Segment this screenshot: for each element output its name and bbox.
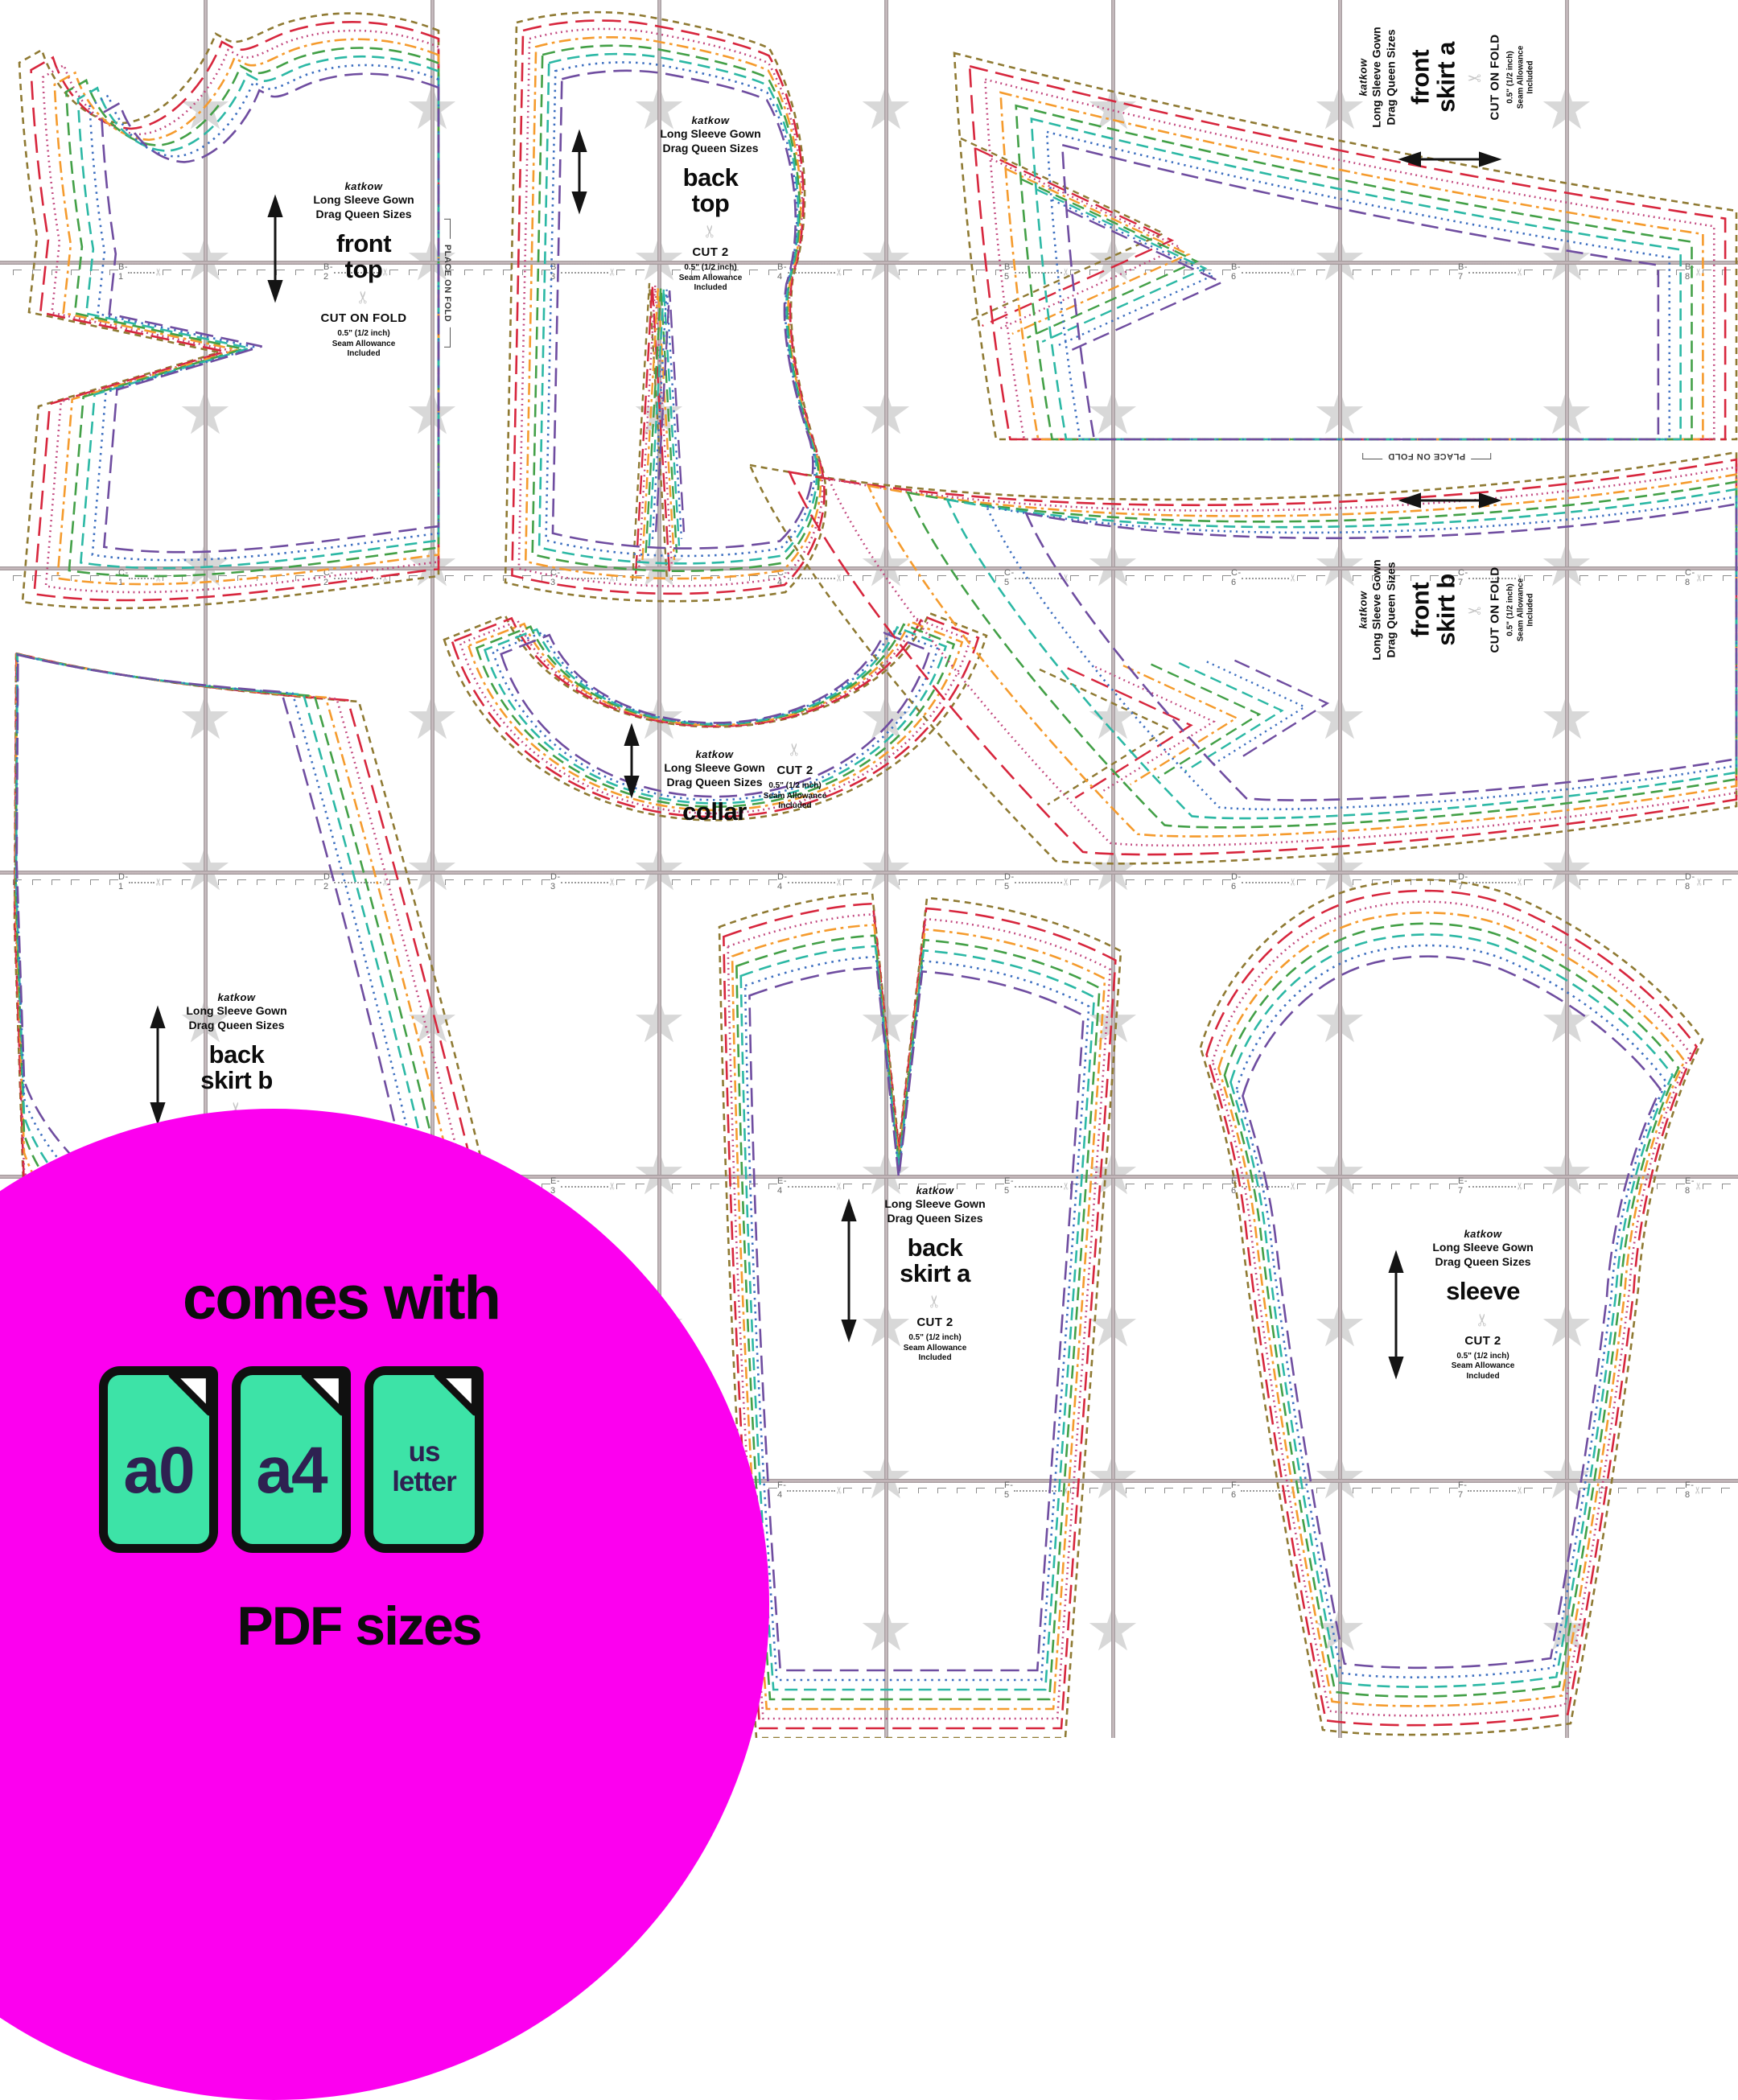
scissors-icon: ✂ bbox=[785, 743, 805, 757]
product-name-line1: Long Sleeve Gown bbox=[1390, 1240, 1576, 1254]
seam-allowance-line: 0.5" (1/2 inch) bbox=[1506, 517, 1517, 703]
pdf-size-icon-a4: a4 bbox=[232, 1366, 351, 1553]
piece-label-block-back-skirt-a: katkowLong Sleeve GownDrag Queen Sizesba… bbox=[842, 1184, 1028, 1364]
brand-logo: katkow bbox=[842, 1184, 1028, 1196]
cut-instruction: CUT 2 bbox=[842, 1316, 1028, 1329]
piece-label-block-front-top: katkowLong Sleeve GownDrag Queen Sizesfr… bbox=[270, 180, 457, 360]
seam-allowance-line: 0.5" (1/2 inch) bbox=[1506, 0, 1517, 171]
piece-name: backskirt b bbox=[143, 1042, 330, 1093]
seam-allowance-note: 0.5" (1/2 inch)Seam AllowanceIncluded bbox=[1506, 517, 1537, 703]
seam-allowance-note: 0.5" (1/2 inch)Seam AllowanceIncluded bbox=[270, 329, 457, 360]
scissors-icon: ✂ bbox=[925, 1295, 945, 1309]
piece-name-line: back bbox=[842, 1235, 1028, 1261]
place-on-fold-marker: PLACE ON FOLD bbox=[1362, 451, 1491, 461]
seam-allowance-line: Included bbox=[617, 283, 804, 294]
size-outline-size-4 bbox=[868, 475, 1736, 837]
seam-allowance-line: 0.5" (1/2 inch) bbox=[270, 329, 457, 340]
piece-name-line: front bbox=[1408, 0, 1434, 171]
piece-name-line: skirt b bbox=[143, 1068, 330, 1093]
product-name-line2: Drag Queen Sizes bbox=[1390, 1254, 1576, 1269]
seam-allowance-line: Included bbox=[1390, 1372, 1576, 1382]
dart-line-size-8 bbox=[1234, 661, 1327, 758]
piece-name: backskirt a bbox=[842, 1235, 1028, 1286]
fold-bracket bbox=[1362, 453, 1382, 459]
piece-label-block-sleeve: katkowLong Sleeve GownDrag Queen Sizessl… bbox=[1390, 1228, 1576, 1381]
seam-allowance-line: 0.5" (1/2 inch) bbox=[617, 263, 804, 274]
size-outline-size-6 bbox=[1032, 119, 1681, 439]
piece-name-line: skirt b bbox=[1433, 517, 1459, 703]
product-name-line2: Drag Queen Sizes bbox=[1384, 0, 1398, 171]
seam-allowance-line: Included bbox=[731, 801, 859, 812]
brand-logo: katkow bbox=[617, 114, 804, 126]
product-name-line1: Long Sleeve Gown bbox=[617, 126, 804, 141]
size-outline-size-4 bbox=[1001, 93, 1703, 439]
seam-allowance-line: 0.5" (1/2 inch) bbox=[1390, 1352, 1576, 1362]
size-outline-size-2 bbox=[789, 459, 1736, 854]
folded-corner-icon bbox=[167, 1370, 214, 1417]
seam-allowance-note: 0.5" (1/2 inch)Seam AllowanceIncluded bbox=[842, 1333, 1028, 1364]
folded-corner-icon bbox=[433, 1370, 480, 1417]
cut-instruction: CUT ON FOLD bbox=[1489, 517, 1502, 703]
piece-name-line: skirt a bbox=[1433, 0, 1459, 171]
seam-allowance-line: 0.5" (1/2 inch) bbox=[731, 781, 859, 792]
product-name-line2: Drag Queen Sizes bbox=[270, 207, 457, 221]
seam-allowance-line: Seam Allowance bbox=[731, 792, 859, 802]
seam-allowance-note: 0.5" (1/2 inch)Seam AllowanceIncluded bbox=[617, 263, 804, 294]
seam-allowance-line: Included bbox=[842, 1353, 1028, 1364]
place-on-fold-label: PLACE ON FOLD bbox=[443, 245, 452, 322]
size-outline-size-7 bbox=[1047, 132, 1670, 439]
piece-name-line: back bbox=[143, 1042, 330, 1068]
brand-logo: katkow bbox=[143, 991, 330, 1003]
seam-allowance-note: 0.5" (1/2 inch)Seam AllowanceIncluded bbox=[1390, 1352, 1576, 1382]
seam-allowance-line: Seam Allowance bbox=[270, 340, 457, 350]
piece-name: frontskirt a bbox=[1408, 0, 1459, 171]
piece-name: frontskirt b bbox=[1408, 517, 1459, 703]
cut-instruction: CUT 2 bbox=[1390, 1334, 1576, 1348]
piece-name-line: back bbox=[617, 165, 804, 191]
seam-allowance-line: Seam Allowance bbox=[1516, 517, 1526, 703]
product-name-line1: Long Sleeve Gown bbox=[143, 1003, 330, 1018]
product-name-line1: Long Sleeve Gown bbox=[1369, 517, 1384, 703]
file-format-label: us letter bbox=[380, 1438, 468, 1497]
piece-name: sleeve bbox=[1390, 1279, 1576, 1304]
seam-allowance-line: 0.5" (1/2 inch) bbox=[842, 1333, 1028, 1344]
dart-line-size-6 bbox=[1037, 190, 1205, 342]
cut-instruction: CUT 2 bbox=[731, 764, 859, 777]
scissors-icon: ✂ bbox=[1472, 1312, 1493, 1327]
piece-label-block-back-top: katkowLong Sleeve GownDrag Queen Sizesba… bbox=[617, 114, 804, 294]
cut-instruction: CUT ON FOLD bbox=[270, 311, 457, 325]
place-on-fold-marker: PLACE ON FOLD bbox=[443, 219, 452, 348]
piece-name-line: skirt a bbox=[842, 1261, 1028, 1287]
piece-label-block-front-skirt-a: katkowLong Sleeve GownDrag Queen Sizesfr… bbox=[1357, 0, 1537, 171]
seam-allowance-line: Included bbox=[1526, 517, 1537, 703]
product-name-line2: Drag Queen Sizes bbox=[143, 1018, 330, 1032]
dart-line-size-4 bbox=[1123, 665, 1237, 784]
scissors-icon: ✂ bbox=[1468, 68, 1482, 88]
fold-bracket bbox=[444, 219, 451, 239]
promo-heading: comes with bbox=[183, 1263, 500, 1333]
fold-bracket bbox=[1471, 453, 1491, 459]
seam-allowance-line: Seam Allowance bbox=[1390, 1361, 1576, 1372]
brand-logo: katkow bbox=[1357, 517, 1369, 703]
dart-line-size-3 bbox=[1095, 667, 1213, 792]
scissors-icon: ✂ bbox=[1468, 600, 1482, 620]
product-name-line2: Drag Queen Sizes bbox=[617, 141, 804, 155]
fold-bracket bbox=[444, 327, 451, 348]
pattern-sheet: { "sizes": [ {"id":"size-1","color":"#8f… bbox=[0, 0, 1738, 1738]
piece-name-line: top bbox=[270, 257, 457, 282]
piece-name-line: sleeve bbox=[1390, 1279, 1576, 1304]
size-outline-size-5 bbox=[1016, 105, 1692, 439]
product-name-line2: Drag Queen Sizes bbox=[1384, 517, 1398, 703]
seam-allowance-note: 0.5" (1/2 inch)Seam AllowanceIncluded bbox=[1506, 0, 1537, 171]
brand-logo: katkow bbox=[270, 180, 457, 192]
piece-name-line: front bbox=[1408, 517, 1434, 703]
piece-name-line: front bbox=[270, 231, 457, 257]
product-name-line1: Long Sleeve Gown bbox=[270, 192, 457, 207]
product-name-line1: Long Sleeve Gown bbox=[1369, 0, 1384, 171]
piece-front-skirt-a-outline bbox=[954, 53, 1736, 439]
promo-footer: PDF sizes bbox=[237, 1595, 480, 1657]
seam-allowance-line: Seam Allowance bbox=[842, 1344, 1028, 1354]
file-format-label: a4 bbox=[256, 1433, 326, 1509]
cut-instruction: CUT 2 bbox=[617, 245, 804, 259]
file-format-label: a0 bbox=[123, 1433, 193, 1509]
seam-allowance-note: 0.5" (1/2 inch)Seam AllowanceIncluded bbox=[731, 781, 859, 812]
folded-corner-icon bbox=[300, 1370, 347, 1417]
scissors-icon: ✂ bbox=[353, 290, 373, 305]
size-outline-size-2 bbox=[970, 66, 1725, 439]
seam-allowance-line: Seam Allowance bbox=[1516, 0, 1526, 171]
piece-name: backtop bbox=[617, 165, 804, 216]
scissors-icon: ✂ bbox=[700, 224, 720, 239]
piece-back-top-outline bbox=[505, 12, 826, 601]
piece-name-line: top bbox=[617, 191, 804, 216]
piece-cut-block-collar: ✂CUT 20.5" (1/2 inch)Seam AllowanceInclu… bbox=[731, 734, 859, 812]
seam-allowance-line: Seam Allowance bbox=[617, 274, 804, 284]
dart-line-size-6 bbox=[1179, 663, 1282, 771]
product-name-line2: Drag Queen Sizes bbox=[842, 1211, 1028, 1225]
seam-allowance-line: Included bbox=[270, 349, 457, 360]
brand-logo: katkow bbox=[1390, 1228, 1576, 1240]
seam-allowance-line: Included bbox=[1526, 0, 1537, 171]
piece-label-block-front-skirt-b: katkowLong Sleeve GownDrag Queen Sizesfr… bbox=[1357, 517, 1537, 703]
pdf-size-icon-a0: a0 bbox=[99, 1366, 218, 1553]
pdf-size-icon-us-letter: us letter bbox=[364, 1366, 484, 1553]
dart-line-size-1 bbox=[1040, 669, 1168, 805]
place-on-fold-label: PLACE ON FOLD bbox=[1388, 451, 1465, 461]
brand-logo: katkow bbox=[1357, 0, 1369, 171]
piece-name: fronttop bbox=[270, 231, 457, 282]
product-name-line1: Long Sleeve Gown bbox=[842, 1196, 1028, 1211]
cut-instruction: CUT ON FOLD bbox=[1489, 0, 1502, 171]
